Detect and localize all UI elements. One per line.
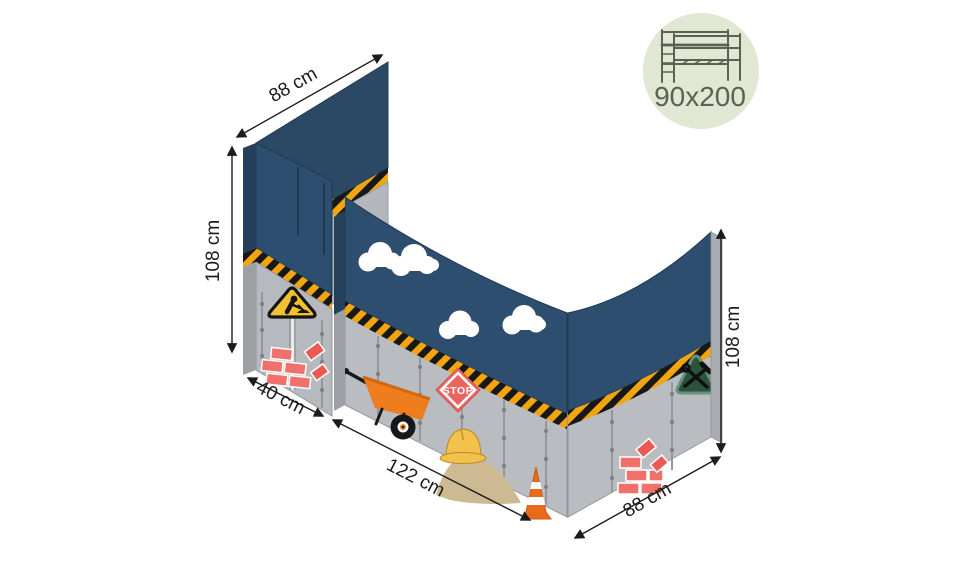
- dimension-label-right-height: 108 cm: [723, 306, 744, 368]
- product-image: STOP: [0, 0, 960, 587]
- middle-panel-left-edge: [334, 197, 345, 411]
- right-panel: [568, 232, 722, 517]
- product-dimension-illustration: STOP: [0, 0, 960, 587]
- middle-panel: STOP: [343, 197, 567, 519]
- badge-size-label: 90x200: [654, 81, 746, 112]
- left-panel-outer-edge: [243, 143, 256, 375]
- left-front-panel: [243, 143, 332, 416]
- stop-sign-label: STOP: [443, 385, 473, 397]
- dimension-label-rear-left-width: 88 cm: [266, 63, 321, 107]
- dimension-label-left-height: 108 cm: [203, 220, 224, 282]
- size-badge: 90x200: [643, 13, 759, 129]
